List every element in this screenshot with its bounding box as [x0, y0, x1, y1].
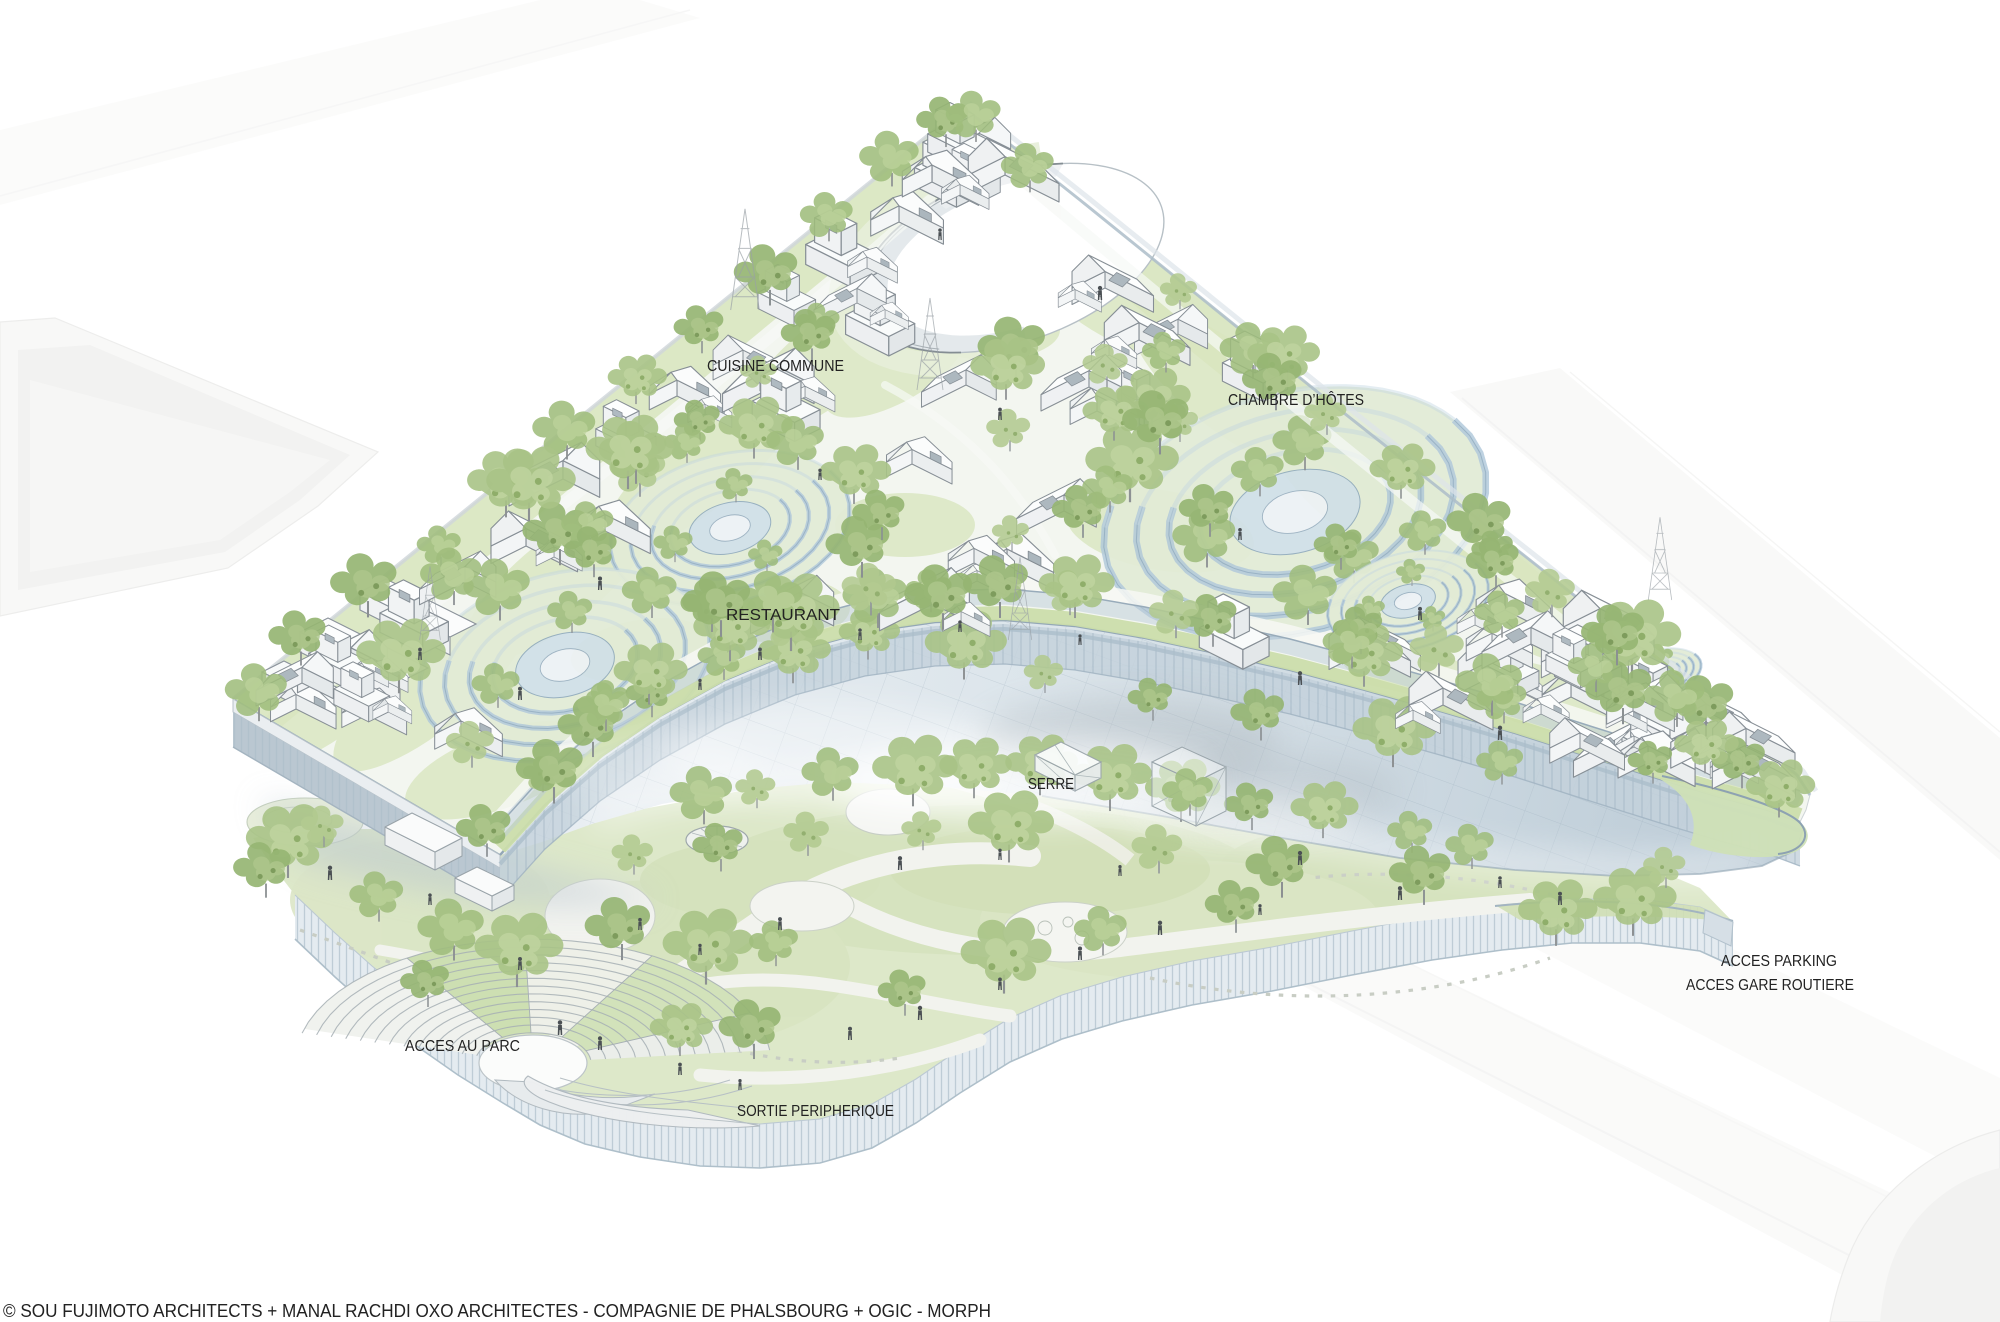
svg-text:CUISINE COMMUNE: CUISINE COMMUNE — [707, 358, 844, 375]
svg-text:RESTAURANT: RESTAURANT — [726, 607, 840, 624]
svg-text:SORTIE PERIPHERIQUE: SORTIE PERIPHERIQUE — [737, 1103, 894, 1120]
svg-text:© SOU FUJIMOTO ARCHITECTS + MA: © SOU FUJIMOTO ARCHITECTS + MANAL RACHDI… — [3, 1300, 991, 1321]
svg-text:ACCES PARKING: ACCES PARKING — [1721, 953, 1837, 970]
svg-text:SERRE: SERRE — [1028, 776, 1074, 793]
svg-text:ACCES AU PARC: ACCES AU PARC — [405, 1038, 520, 1055]
svg-text:CHAMBRE D’HÔTES: CHAMBRE D’HÔTES — [1228, 390, 1364, 409]
svg-text:ACCES GARE ROUTIERE: ACCES GARE ROUTIERE — [1686, 977, 1854, 994]
